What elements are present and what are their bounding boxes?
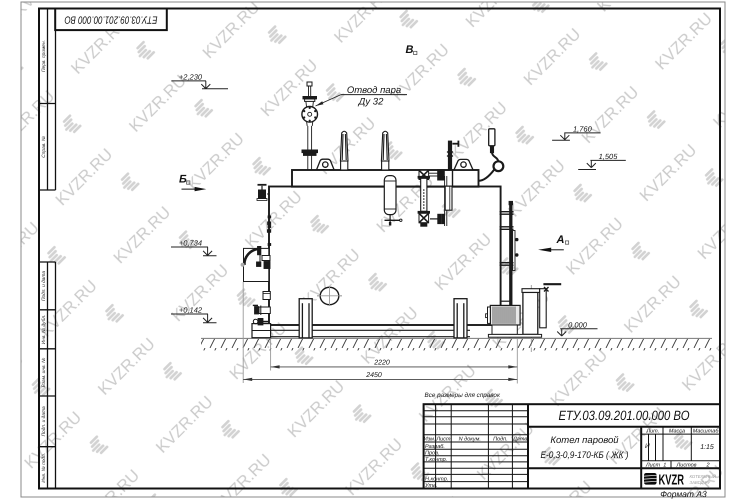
svg-text:Н.контр.: Н.контр.: [425, 476, 448, 482]
svg-text:Лист: Лист: [645, 462, 661, 468]
svg-text:Подп.: Подп.: [493, 436, 508, 442]
svg-text:Разраб.: Разраб.: [425, 443, 445, 450]
svg-text:ЕТУ.03.09.201.00.000 ВО: ЕТУ.03.09.201.00.000 ВО: [559, 408, 690, 423]
svg-text:Изм.: Изм.: [424, 436, 436, 442]
svg-text:Е-0,3-0,9-170-КБ ( ЖК ): Е-0,3-0,9-170-КБ ( ЖК ): [541, 450, 629, 461]
svg-text:Лист: Лист: [435, 436, 451, 442]
svg-text:Котел паровой: Котел паровой: [550, 435, 619, 446]
svg-text:Б: Б: [179, 174, 187, 186]
svg-text:0,000: 0,000: [568, 320, 588, 329]
svg-text:Масштаб: Масштаб: [693, 427, 720, 434]
svg-text:А: А: [556, 234, 565, 246]
svg-text:Все размеры для справок: Все размеры для справок: [425, 392, 501, 399]
svg-text:1,505: 1,505: [599, 152, 619, 161]
svg-text:Формат А3: Формат А3: [660, 489, 707, 499]
svg-text:Ду 32: Ду 32: [358, 97, 384, 108]
svg-text:ЗАВОД.РУ: ЗАВОД.РУ: [690, 480, 712, 485]
svg-text:1: 1: [663, 462, 666, 468]
svg-text:Справ. №: Справ. №: [41, 135, 47, 158]
svg-text:Листов: Листов: [675, 462, 696, 468]
svg-text:1,760: 1,760: [573, 124, 593, 133]
svg-text:ЕТУ.03.09.201.00.000 ВО: ЕТУ.03.09.201.00.000 ВО: [65, 14, 158, 26]
svg-text:Пров.: Пров.: [425, 451, 440, 457]
svg-text:2: 2: [705, 462, 709, 468]
svg-text:Подп. и дата: Подп. и дата: [41, 406, 47, 436]
svg-text:N докум.: N докум.: [459, 436, 481, 442]
svg-text:Масса: Масса: [669, 428, 685, 434]
svg-text:2450: 2450: [365, 372, 382, 379]
svg-text:КОТЕЛЬНЫЙ: КОТЕЛЬНЫЙ: [690, 474, 716, 479]
svg-text:+2,230: +2,230: [179, 72, 203, 81]
svg-text:+0,142: +0,142: [179, 306, 203, 315]
svg-text:Перв. примен.: Перв. примен.: [41, 40, 47, 72]
svg-text:И: И: [645, 443, 650, 450]
svg-text:Дата: Дата: [512, 436, 528, 442]
svg-text:Т.контр.: Т.контр.: [425, 457, 447, 463]
svg-text:2220: 2220: [373, 359, 390, 366]
svg-text:Взам. инв. №: Взам. инв. №: [41, 357, 47, 387]
svg-text:+0,734: +0,734: [179, 239, 202, 248]
svg-text:KVZR: KVZR: [659, 472, 685, 488]
svg-text:1:15: 1:15: [700, 444, 714, 451]
svg-text:В: В: [406, 44, 414, 56]
svg-text:Утв.: Утв.: [424, 483, 438, 489]
svg-text:Инв. № подл.: Инв. № подл.: [41, 453, 47, 483]
svg-text:Лит.: Лит.: [645, 428, 659, 434]
svg-text:Инв. № дубл.: Инв. № дубл.: [41, 315, 47, 345]
svg-text:Подп. и дата: Подп. и дата: [41, 271, 47, 301]
